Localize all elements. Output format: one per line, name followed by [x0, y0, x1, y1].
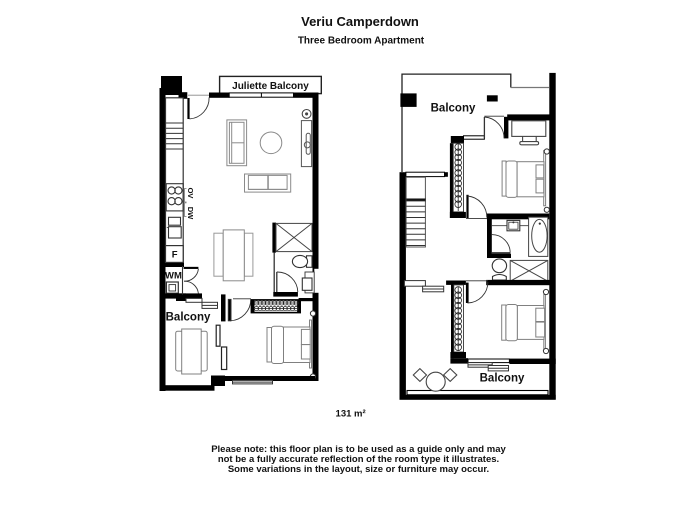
svg-text:Three Bedroom Apartment: Three Bedroom Apartment	[298, 36, 425, 47]
svg-text:Balcony: Balcony	[431, 103, 476, 115]
svg-text:WM: WM	[165, 270, 182, 281]
svg-text:Balcony: Balcony	[480, 373, 525, 385]
svg-text:F: F	[172, 250, 178, 261]
svg-text:Some variations in the layout,: Some variations in the layout, size or f…	[228, 464, 489, 475]
svg-text:DW: DW	[186, 207, 195, 220]
svg-text:Veriu Camperdown: Veriu Camperdown	[301, 14, 419, 29]
svg-text:131 m²: 131 m²	[336, 409, 366, 420]
svg-text:OV: OV	[186, 188, 195, 199]
svg-text:Juliette Balcony: Juliette Balcony	[232, 81, 309, 92]
svg-text:Balcony: Balcony	[166, 312, 211, 324]
